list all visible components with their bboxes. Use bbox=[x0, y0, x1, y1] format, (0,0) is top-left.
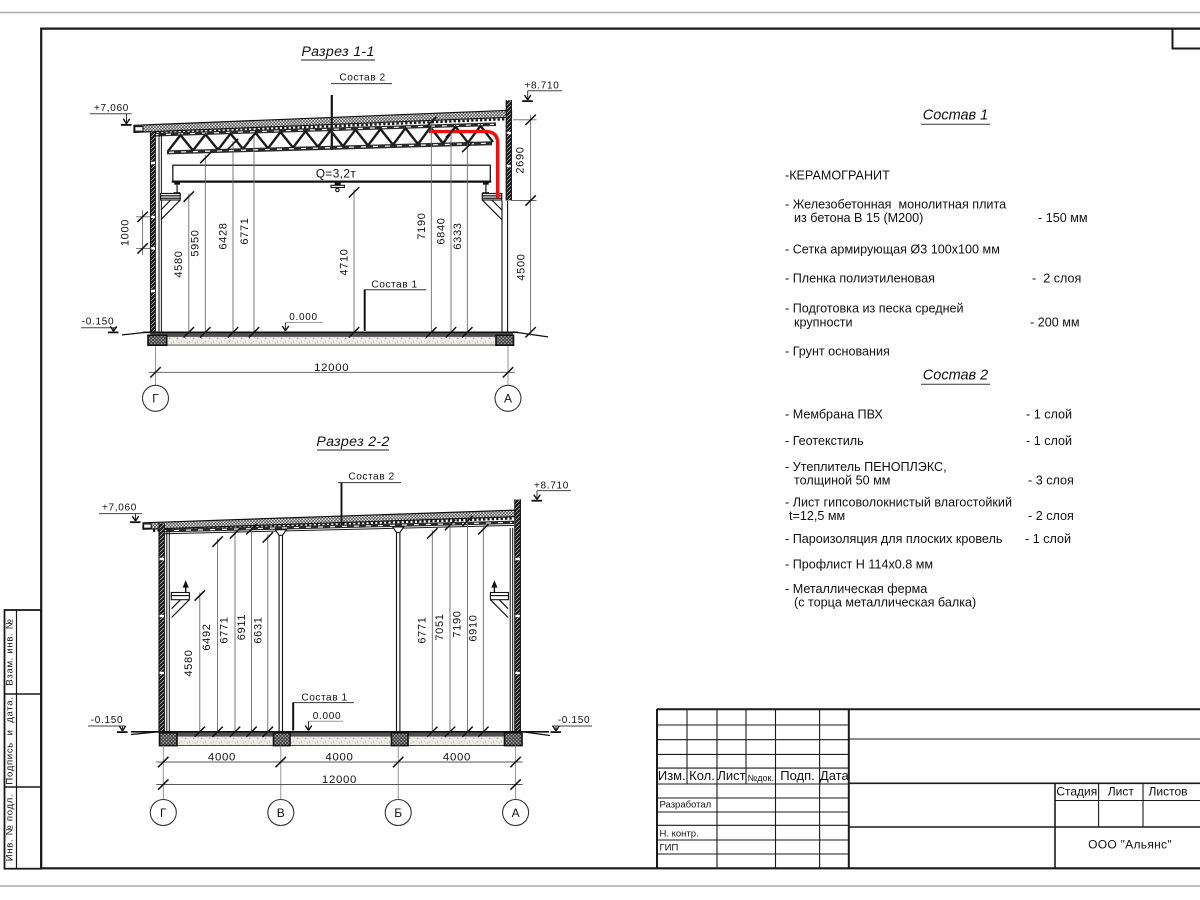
svg-text:№док.: №док. bbox=[748, 773, 774, 783]
svg-text:Разрез 2-2: Разрез 2-2 bbox=[316, 434, 389, 450]
svg-text:- Пароизоляция для плоских кро: - Пароизоляция для плоских кровель bbox=[785, 532, 1003, 546]
svg-text:Н. контр.: Н. контр. bbox=[660, 829, 699, 840]
svg-text:6840: 6840 bbox=[436, 217, 448, 244]
svg-text:- Мембрана ПВХ: - Мембрана ПВХ bbox=[785, 408, 883, 422]
svg-text:4500: 4500 bbox=[516, 253, 528, 280]
svg-text:6631: 6631 bbox=[252, 616, 264, 643]
svg-text:12000: 12000 bbox=[322, 774, 357, 786]
svg-text:Взам. инв. №: Взам. инв. № bbox=[5, 618, 16, 685]
svg-text:- 3 слоя: - 3 слоя bbox=[1028, 473, 1074, 487]
svg-text:+7,060: +7,060 bbox=[102, 503, 137, 514]
svg-text:Лист: Лист bbox=[1108, 785, 1135, 799]
svg-text:-0.150: -0.150 bbox=[558, 715, 591, 726]
svg-text:- 1 слой: - 1 слой bbox=[1026, 408, 1072, 422]
svg-text:- Железобетонная монолитная п: - Железобетонная монолитная плита bbox=[785, 197, 1006, 211]
svg-text:Г: Г bbox=[160, 806, 167, 820]
svg-text:- Геотекстиль: - Геотекстиль bbox=[785, 434, 864, 448]
svg-text:Состав 2: Состав 2 bbox=[923, 368, 988, 384]
svg-text:Кол.: Кол. bbox=[689, 768, 715, 783]
svg-text:- 2 слоя: - 2 слоя bbox=[1028, 509, 1074, 523]
svg-text:2690: 2690 bbox=[515, 146, 527, 173]
svg-text:- 1 слой: - 1 слой bbox=[1025, 532, 1071, 546]
svg-text:6771: 6771 bbox=[239, 217, 251, 244]
svg-text:6771: 6771 bbox=[219, 616, 231, 643]
svg-text:- Профлист Н 114х0.8 мм: - Профлист Н 114х0.8 мм bbox=[785, 557, 933, 571]
svg-text:+8.710: +8.710 bbox=[534, 481, 569, 492]
svg-text:Лист: Лист bbox=[717, 768, 745, 783]
svg-text:-0.150: -0.150 bbox=[91, 715, 124, 726]
svg-text:Стадия: Стадия bbox=[1056, 785, 1097, 799]
svg-text:-0.150: -0.150 bbox=[82, 317, 115, 328]
svg-text:толщиной 50 мм: толщиной 50 мм bbox=[794, 473, 890, 487]
svg-text:t=12,5 мм: t=12,5 мм bbox=[789, 509, 845, 523]
svg-text:4000: 4000 bbox=[325, 752, 353, 764]
svg-text:В: В bbox=[277, 806, 285, 820]
svg-text:12000: 12000 bbox=[314, 362, 349, 374]
svg-text:6333: 6333 bbox=[452, 222, 464, 249]
svg-text:+8.710: +8.710 bbox=[524, 80, 559, 91]
svg-text:- Пленка полиэтиленовая: - Пленка полиэтиленовая bbox=[785, 272, 935, 286]
svg-text:- 1 слой: - 1 слой bbox=[1026, 434, 1072, 448]
svg-text:4000: 4000 bbox=[443, 752, 471, 764]
svg-text:Подп.: Подп. bbox=[780, 768, 815, 783]
svg-text:А: А bbox=[512, 806, 520, 820]
svg-text:- 2 слоя: - 2 слоя bbox=[1032, 272, 1081, 286]
svg-text:6910: 6910 bbox=[468, 614, 480, 641]
svg-text:- Металлическая ферма: - Металлическая ферма bbox=[785, 582, 927, 596]
svg-text:-КЕРАМОГРАНИТ: -КЕРАМОГРАНИТ bbox=[785, 169, 890, 183]
svg-text:- Сетка армирующая Ø3 100х100: - Сетка армирующая Ø3 100х100 мм bbox=[785, 243, 1000, 257]
svg-text:Q=3,2т: Q=3,2т bbox=[316, 166, 356, 180]
svg-text:(с торца металлическая балка): (с торца металлическая балка) bbox=[794, 596, 976, 610]
svg-text:Инв. № подл.: Инв. № подл. bbox=[5, 794, 16, 862]
svg-text:7051: 7051 bbox=[434, 613, 446, 640]
svg-text:Б: Б bbox=[394, 806, 402, 820]
svg-text:+7,060: +7,060 bbox=[94, 103, 129, 114]
svg-text:6428: 6428 bbox=[218, 222, 230, 249]
svg-text:6911: 6911 bbox=[236, 614, 248, 640]
svg-text:ГИП: ГИП bbox=[660, 843, 679, 854]
svg-text:0.000: 0.000 bbox=[313, 711, 342, 722]
svg-text:из бетона В 15 (М200): из бетона В 15 (М200) bbox=[794, 211, 923, 225]
svg-text:7190: 7190 bbox=[416, 212, 428, 239]
svg-text:4000: 4000 bbox=[208, 752, 236, 764]
svg-text:- 200 мм: - 200 мм bbox=[1030, 315, 1080, 329]
svg-text:Изм.: Изм. bbox=[658, 768, 686, 783]
svg-text:- 150 мм: - 150 мм bbox=[1038, 211, 1088, 225]
svg-text:- Утеплитель ПЕНОПЛЭКС,: - Утеплитель ПЕНОПЛЭКС, bbox=[785, 460, 947, 474]
svg-text:крупности: крупности bbox=[794, 315, 853, 329]
svg-text:Состав 2: Состав 2 bbox=[339, 73, 385, 84]
svg-text:Состав 2: Состав 2 bbox=[348, 472, 394, 483]
svg-text:Состав 1: Состав 1 bbox=[371, 280, 417, 291]
svg-text:7190: 7190 bbox=[452, 610, 464, 637]
svg-text:ООО "Альянс": ООО "Альянс" bbox=[1088, 838, 1172, 852]
svg-text:Листов: Листов bbox=[1149, 785, 1188, 799]
svg-text:Состав 1: Состав 1 bbox=[301, 693, 347, 704]
svg-text:4710: 4710 bbox=[338, 248, 350, 275]
svg-text:6771: 6771 bbox=[417, 616, 429, 643]
svg-text:А: А bbox=[504, 392, 512, 406]
svg-text:- Грунт основания: - Грунт основания bbox=[785, 345, 890, 359]
svg-text:Г: Г bbox=[152, 392, 159, 406]
svg-text:1000: 1000 bbox=[120, 219, 132, 246]
svg-text:5950: 5950 bbox=[190, 229, 202, 256]
svg-text:6492: 6492 bbox=[201, 623, 213, 650]
svg-text:4580: 4580 bbox=[183, 649, 195, 676]
svg-text:- Подготовка из песка средней: - Подготовка из песка средней bbox=[785, 302, 964, 316]
svg-text:0.000: 0.000 bbox=[289, 312, 318, 323]
svg-text:Разрез 1-1: Разрез 1-1 bbox=[301, 44, 374, 60]
svg-text:Дата: Дата bbox=[820, 768, 850, 783]
svg-text:Разработал: Разработал bbox=[660, 800, 712, 811]
svg-text:Подпись и дата.: Подпись и дата. bbox=[5, 696, 16, 784]
svg-text:- Лист гипсоволокнистый влагос: - Лист гипсоволокнистый влагостойкий bbox=[785, 496, 1012, 510]
svg-text:4580: 4580 bbox=[173, 250, 185, 277]
svg-text:Состав 1: Состав 1 bbox=[923, 108, 988, 124]
